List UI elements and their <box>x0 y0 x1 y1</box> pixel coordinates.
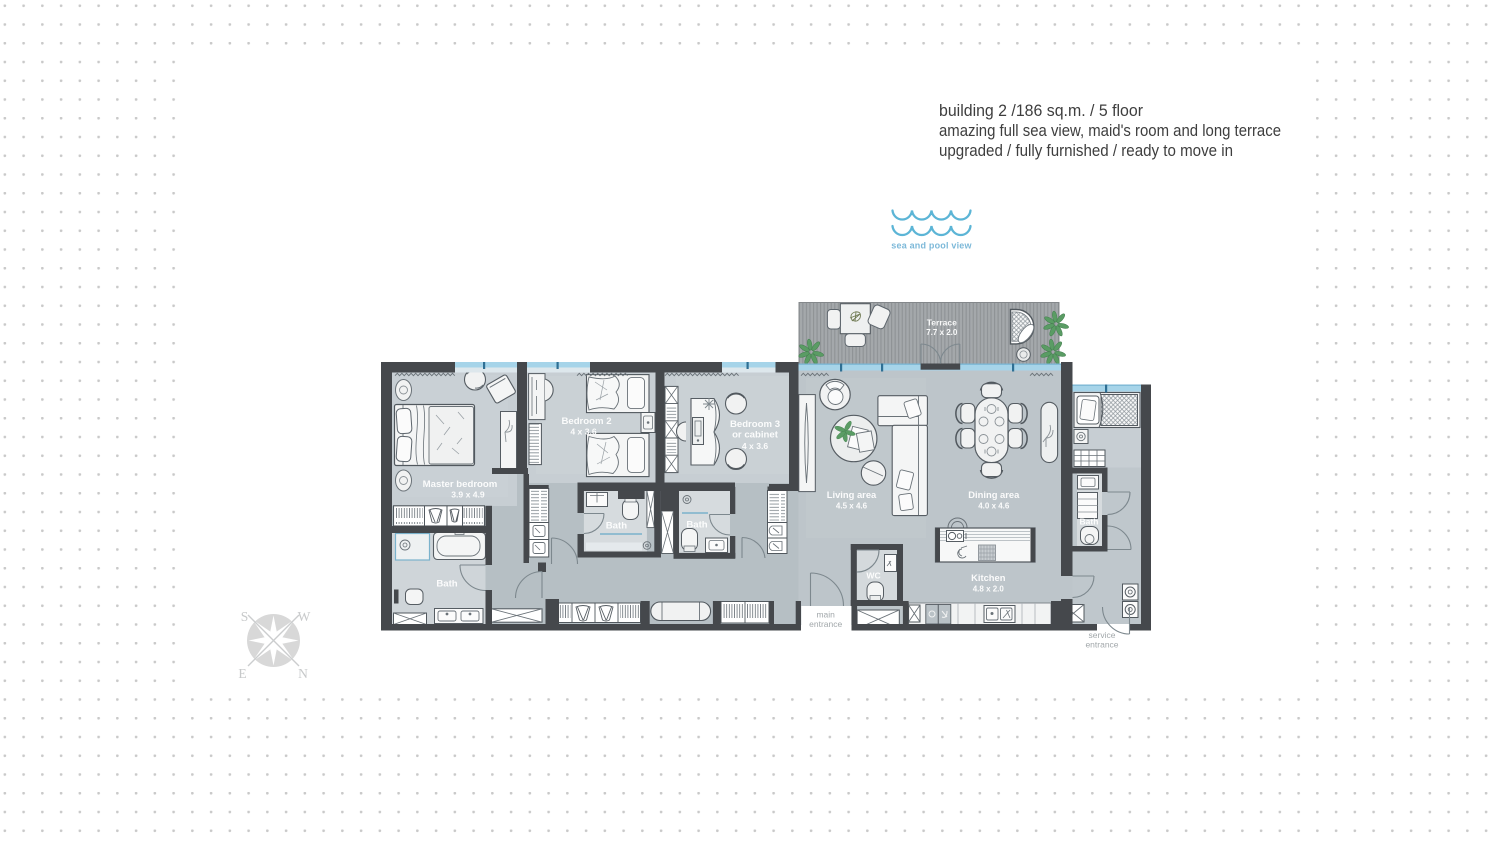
svg-text:4.0 x 4.6: 4.0 x 4.6 <box>978 502 1010 511</box>
svg-text:entrance: entrance <box>1085 640 1118 650</box>
svg-text:7.7 x 2.0: 7.7 x 2.0 <box>926 328 958 337</box>
svg-text:Living area: Living area <box>827 489 877 500</box>
svg-text:4 x 3.6: 4 x 3.6 <box>742 441 769 451</box>
svg-text:E: E <box>238 666 246 681</box>
svg-text:Bath: Bath <box>606 521 627 532</box>
svg-text:Bedroom 2: Bedroom 2 <box>561 416 611 427</box>
svg-text:4.8 x 2.0: 4.8 x 2.0 <box>973 585 1005 594</box>
svg-text:sea and pool view: sea and pool view <box>891 241 972 251</box>
svg-text:upgraded / fully furnished / r: upgraded / fully furnished / ready to mo… <box>939 142 1233 160</box>
svg-text:4 x 3.6: 4 x 3.6 <box>570 427 597 437</box>
svg-text:Master bedroom: Master bedroom <box>423 479 498 490</box>
svg-text:Bedroom 3: Bedroom 3 <box>730 419 780 430</box>
svg-text:building 2 /186 sq.m. / 5 floo: building 2 /186 sq.m. / 5 floor <box>939 102 1143 120</box>
svg-text:3.9 x 4.9: 3.9 x 4.9 <box>451 490 485 500</box>
svg-text:Kitchen: Kitchen <box>971 572 1006 583</box>
svg-text:W: W <box>298 609 311 624</box>
svg-text:Bath: Bath <box>1080 517 1099 527</box>
svg-text:WC: WC <box>866 571 880 581</box>
svg-text:amazing full sea view, maid's: amazing full sea view, maid's room and l… <box>939 122 1281 140</box>
svg-text:main: main <box>816 610 835 620</box>
svg-text:Dining area: Dining area <box>968 489 1020 500</box>
svg-text:service: service <box>1089 630 1116 640</box>
svg-text:S: S <box>241 609 249 624</box>
svg-text:or cabinet: or cabinet <box>732 430 779 441</box>
svg-text:Bath: Bath <box>436 579 457 590</box>
svg-text:Bath: Bath <box>686 520 707 531</box>
svg-text:Terrace: Terrace <box>927 318 957 328</box>
svg-text:entrance: entrance <box>809 619 842 629</box>
svg-text:4.5 x 4.6: 4.5 x 4.6 <box>836 502 868 511</box>
svg-text:N: N <box>298 666 308 681</box>
